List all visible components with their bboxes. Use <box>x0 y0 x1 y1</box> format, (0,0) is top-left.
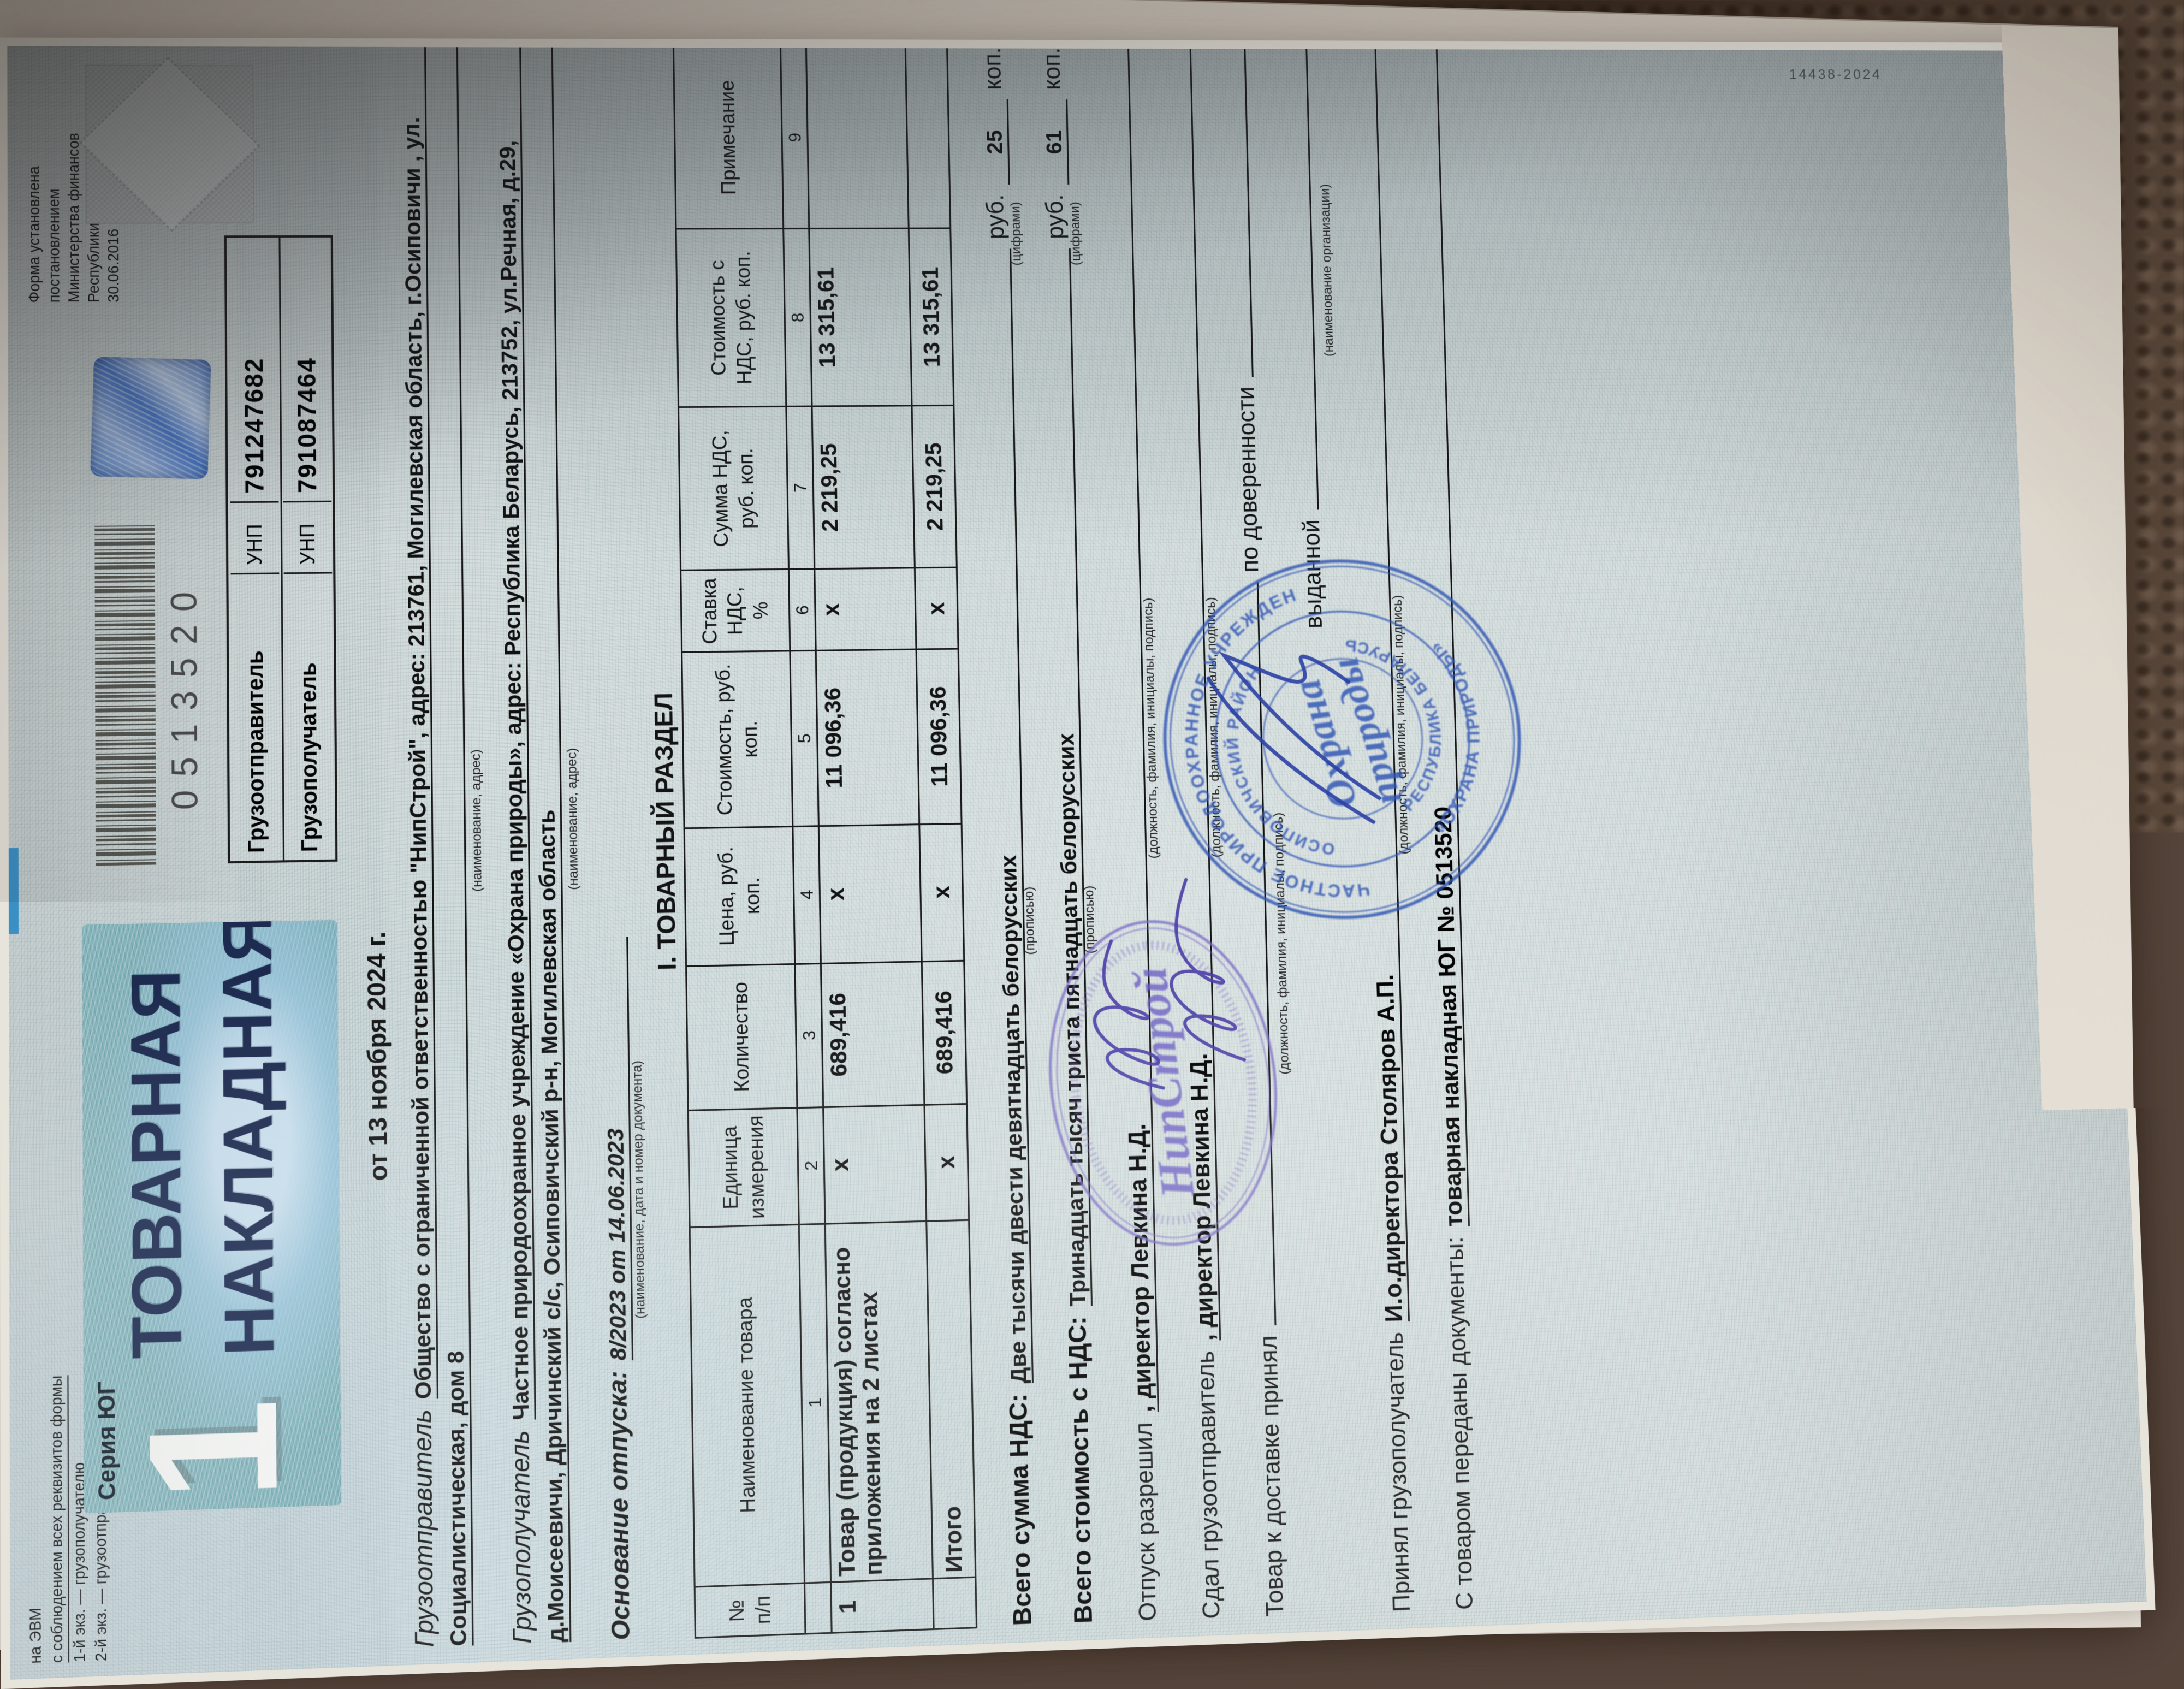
col-qty: Коли­чество <box>686 964 797 1110</box>
printing-house-imprint: 14438-2024 <box>1789 66 1882 82</box>
goods-table: № п/п Наименование товара Единица измере… <box>673 45 977 1639</box>
unp-box: Грузоотправитель УНП 791247682 Грузополу… <box>224 235 338 863</box>
col-name: Наименование товара <box>690 1224 804 1587</box>
consignee-caption: (наименование, адрес) <box>561 490 585 1152</box>
waybill-document: на ЭВМ с соблюдением всех реквизитов фор… <box>0 37 2156 1689</box>
copy-number: 1 <box>121 1397 305 1504</box>
barcode-number: 0513520 <box>163 525 206 864</box>
col-cost: Стоимость, руб. коп. <box>682 651 793 828</box>
corner-line-cut: на ЭВМ <box>25 1275 47 1664</box>
col-cost-vat: Стоимость с НДС, руб. коп. <box>676 229 786 407</box>
goods-name: Товар (продукция) согласно приложения на… <box>825 1221 933 1582</box>
documents-transferred-line: С товаром переданы документы: товарная н… <box>1409 48 1480 1610</box>
col-unit: Единица измерения <box>688 1107 799 1227</box>
total-label: Итого <box>927 1220 976 1579</box>
unp-row-consignor: Грузоотправитель УНП 791247682 <box>227 238 283 861</box>
document-title: ТОВАРНАЯ НАКЛАДНАЯ <box>110 920 296 1360</box>
col-num: № п/п <box>695 1583 805 1638</box>
cost-digits-caption: (цифрами) <box>1066 153 1085 313</box>
corner-line-requisites: с соблюдением всех реквизитов формы <box>46 1375 69 1663</box>
photo-of-waybill: { "photo": { "scene": "товарная накладна… <box>0 0 2184 1638</box>
copy-number-edge-mark: 1 <box>0 842 48 949</box>
hologram-sticker <box>90 357 211 479</box>
barcode <box>94 525 156 866</box>
consignor-caption: (наименование, адрес) <box>466 490 488 1154</box>
watermark-diamond <box>79 57 260 232</box>
watermark-square <box>85 65 254 224</box>
unp-row-consignee: Грузополучатель УНП 791087464 <box>278 238 335 861</box>
col-note: Примечание <box>673 46 783 229</box>
vat-digits-caption: (цифрами) <box>1007 153 1026 314</box>
col-vat-sum: Сумма НДС, руб. коп. <box>679 407 789 571</box>
col-vat-rate: Став­ка НДС, % <box>681 570 790 653</box>
round-stamp-center1: Охрана <box>1284 675 1366 814</box>
document-date: от 13 ноября 2024 г. <box>360 844 394 1270</box>
col-price: Цена, руб. коп. <box>684 826 795 966</box>
title-band: Серия ЮГ 1 ТОВАРНАЯ НАКЛАДНАЯ <box>82 920 341 1514</box>
